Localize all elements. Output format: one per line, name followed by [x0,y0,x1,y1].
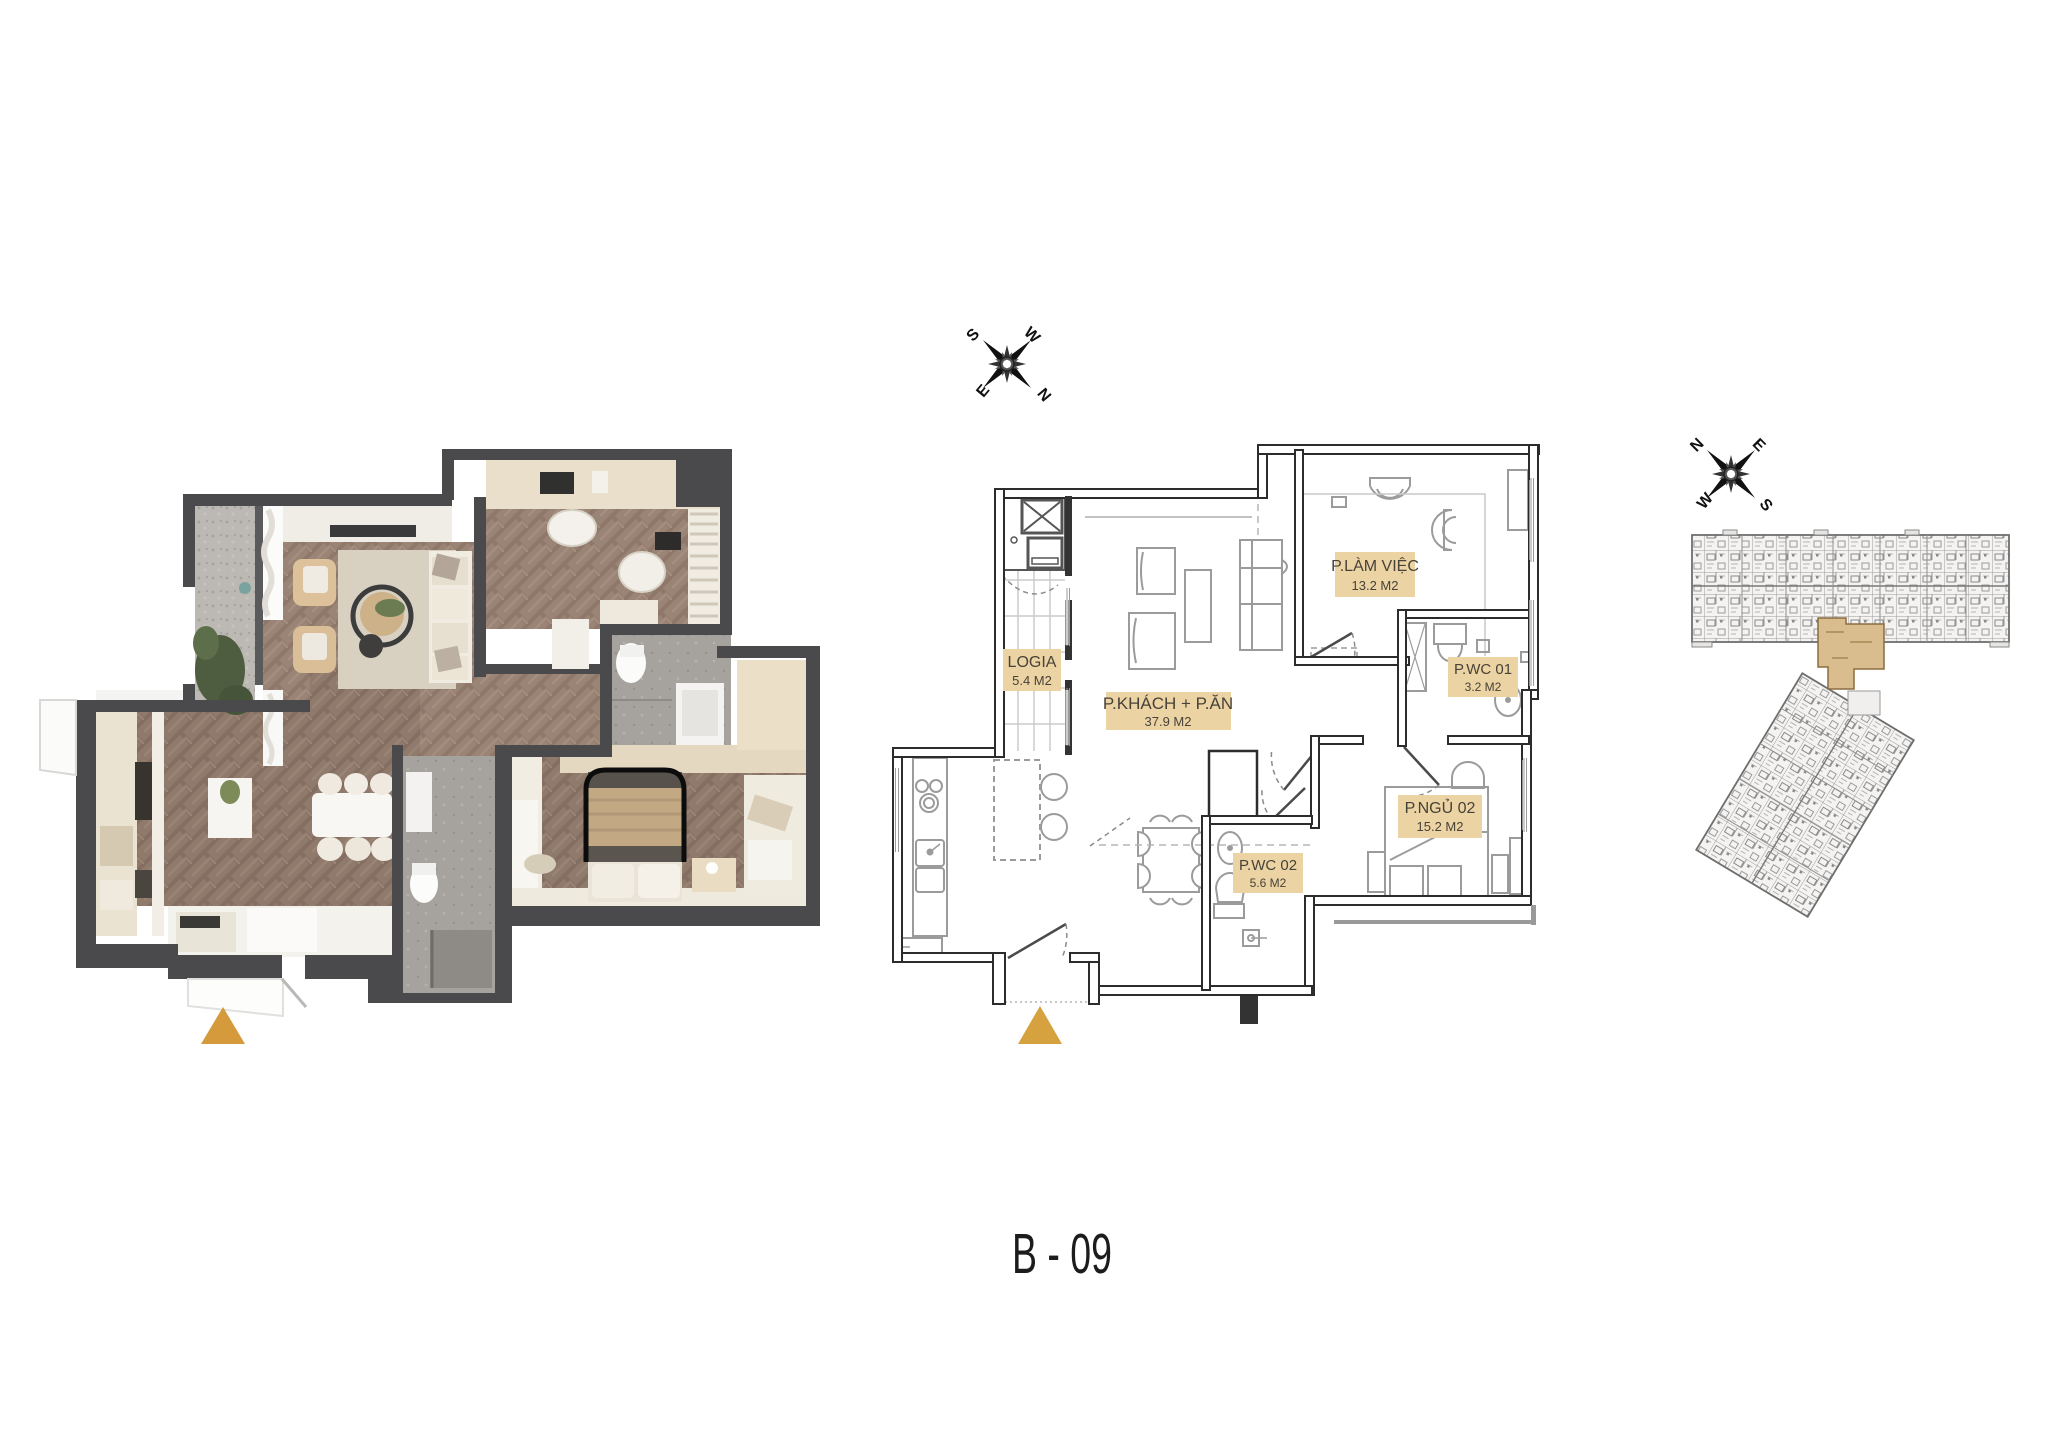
svg-text:37.9 M2: 37.9 M2 [1145,714,1192,729]
svg-text:5.6 M2: 5.6 M2 [1250,876,1287,890]
svg-text:P.WC 01: P.WC 01 [1454,661,1512,678]
svg-text:P.LÀM VIỆC: P.LÀM VIỆC [1331,556,1419,575]
svg-text:B - 09: B - 09 [1012,1222,1112,1286]
svg-text:P.KHÁCH + P.ĂN: P.KHÁCH + P.ĂN [1103,694,1233,713]
svg-text:LOGIA: LOGIA [1008,654,1057,671]
svg-text:P.WC 02: P.WC 02 [1239,857,1297,874]
svg-text:15.2 M2: 15.2 M2 [1417,819,1464,834]
svg-text:5.4 M2: 5.4 M2 [1012,673,1052,688]
svg-text:P.NGỦ 02: P.NGỦ 02 [1405,798,1476,817]
svg-text:3.2 M2: 3.2 M2 [1465,680,1502,694]
svg-text:13.2 M2: 13.2 M2 [1352,578,1399,593]
